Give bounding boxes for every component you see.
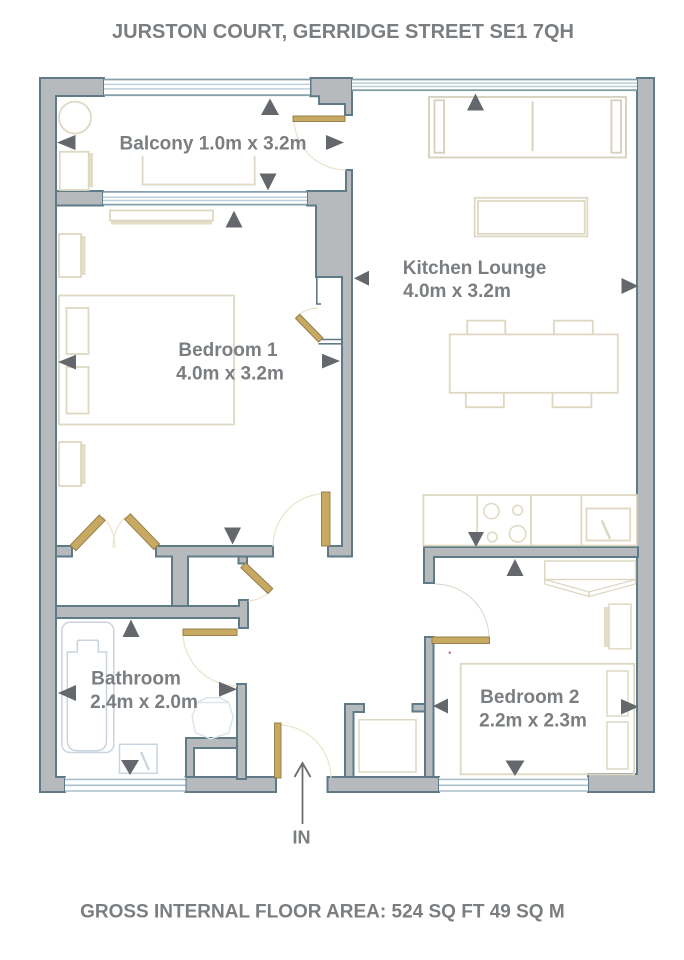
svg-text:Bedroom 2: Bedroom 2: [480, 687, 579, 708]
svg-text:4.0m x 3.2m: 4.0m x 3.2m: [176, 363, 284, 384]
svg-text:Balcony 1.0m x 3.2m: Balcony 1.0m x 3.2m: [120, 134, 307, 155]
svg-text:2.2m x 2.3m: 2.2m x 2.3m: [479, 711, 587, 732]
svg-text:IN: IN: [293, 828, 311, 848]
svg-text:2.4m x 2.0m: 2.4m x 2.0m: [90, 692, 198, 713]
svg-text:GROSS INTERNAL FLOOR AREA: 524: GROSS INTERNAL FLOOR AREA: 524 SQ FT 49 …: [80, 902, 565, 923]
svg-text:Kitchen Lounge: Kitchen Lounge: [403, 258, 547, 279]
svg-text:Bathroom: Bathroom: [91, 669, 181, 690]
svg-text:4.0m x 3.2m: 4.0m x 3.2m: [403, 281, 511, 302]
svg-text:Bedroom 1: Bedroom 1: [178, 340, 278, 361]
svg-text:JURSTON COURT, GERRIDGE STREET: JURSTON COURT, GERRIDGE STREET SE1 7QH: [112, 21, 574, 43]
